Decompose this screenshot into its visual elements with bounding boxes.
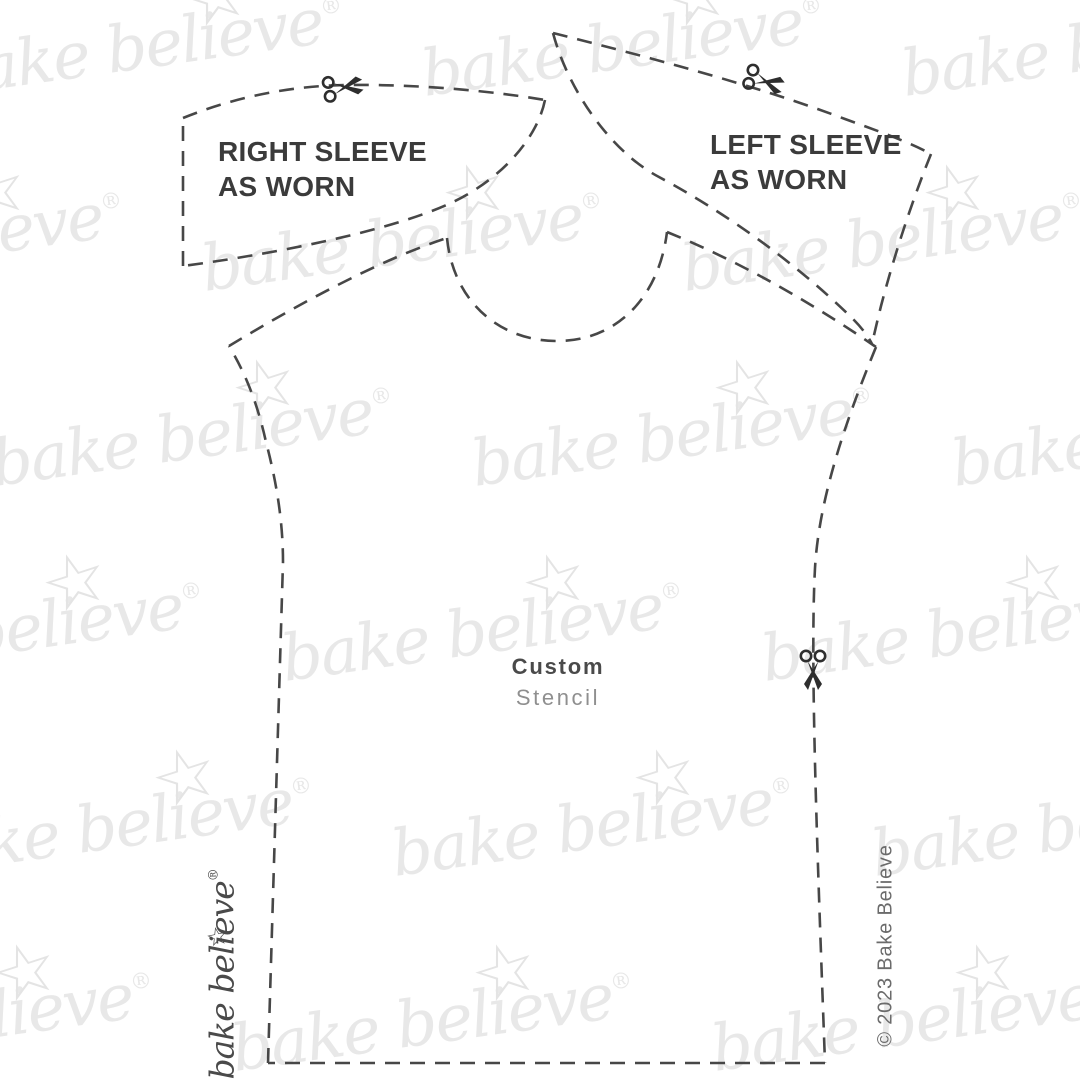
right-sleeve-label: RIGHT SLEEVE AS WORN <box>218 134 427 204</box>
brand-logo-text: bake believe <box>203 881 242 1079</box>
stencil-sheet: ☆bake believe®☆bake believe®☆bake believ… <box>0 0 1080 1080</box>
brand-logo: bake believe® <box>203 890 242 1080</box>
center-label-secondary: Stencil <box>448 685 668 711</box>
pattern-linework <box>0 0 1080 1080</box>
copyright-text: © 2023 Bake Believe <box>875 831 898 1061</box>
shirt-body-outline <box>229 232 876 1063</box>
left-sleeve-label: LEFT SLEEVE AS WORN <box>710 127 902 197</box>
scissors-icon <box>801 651 825 690</box>
scissors-icon <box>322 73 364 103</box>
center-label-primary: Custom <box>448 654 668 680</box>
registered-mark: ® <box>207 869 222 881</box>
center-label: Custom Stencil <box>448 654 668 711</box>
scissors-icon <box>742 64 787 99</box>
